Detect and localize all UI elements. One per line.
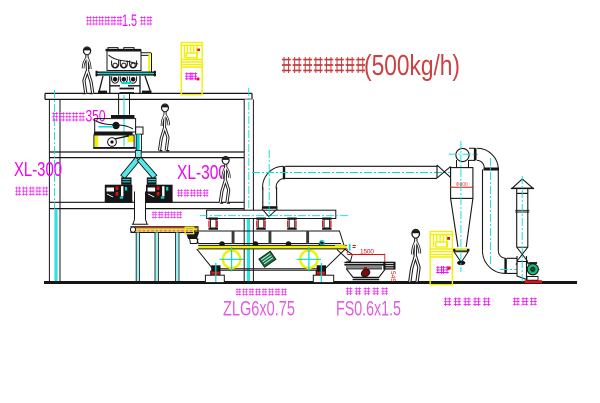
svg-text:FS0.6x1.5: FS0.6x1.5 [336,298,401,321]
svg-text:545: 545 [389,271,396,282]
svg-text:XL-300: XL-300 [177,162,227,184]
svg-text:(500kg/h): (500kg/h) [364,50,460,82]
svg-text:Φ800: Φ800 [456,182,469,188]
svg-text:350: 350 [86,107,106,126]
svg-text:ZLG6x0.75: ZLG6x0.75 [223,298,295,321]
svg-text:1.5: 1.5 [122,11,137,30]
svg-text:1500: 1500 [360,249,374,256]
svg-text:XL-300: XL-300 [14,159,62,181]
